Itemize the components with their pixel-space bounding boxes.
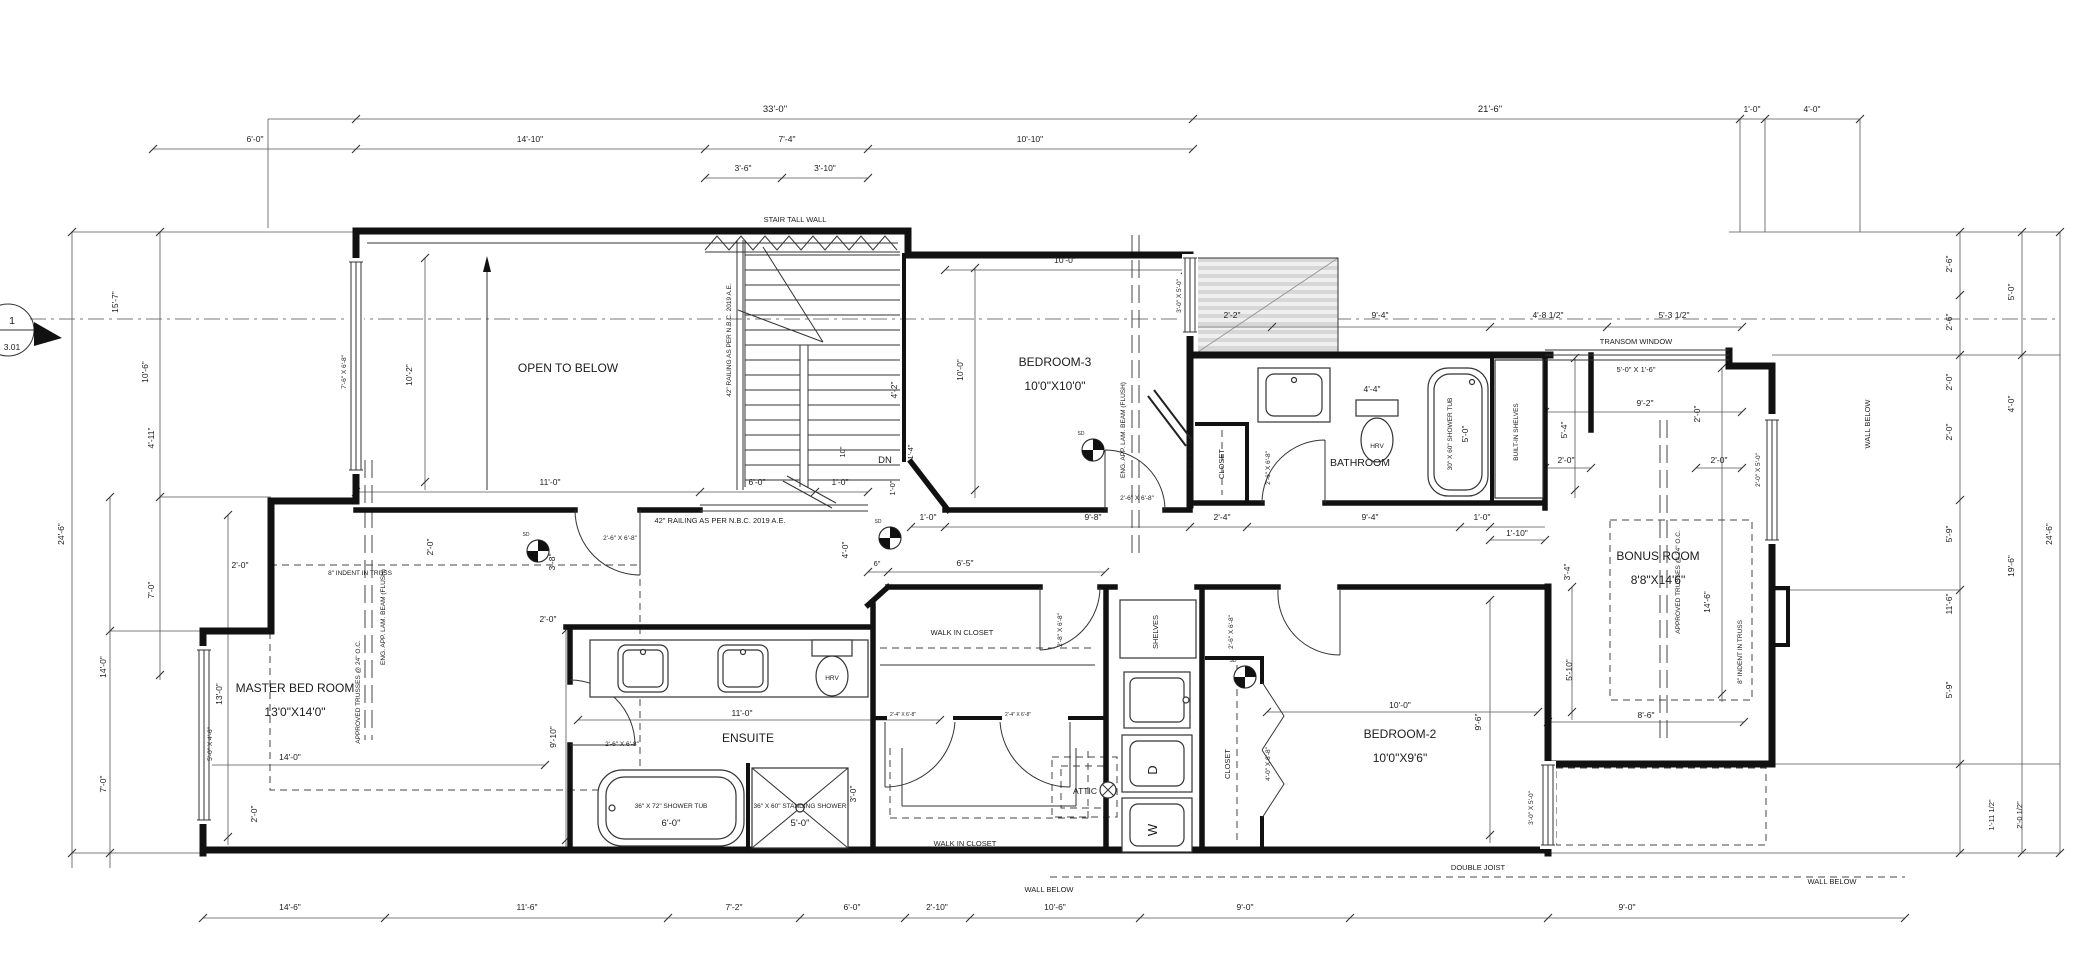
dim-label: 9'-10"	[548, 726, 558, 748]
window-size-label: 2'-0" X 5'-0"	[1755, 452, 1762, 487]
dim-label: 1'-0"	[888, 480, 897, 495]
room-size-label: 10'0"X10'0"	[1024, 379, 1085, 393]
dim-label: 2'-4"	[1214, 512, 1231, 522]
dim-label: 4'-4"	[1364, 384, 1381, 394]
note-trusses: APPROVED TRUSSES @ 24" O.C.	[355, 640, 362, 744]
door-size-label: 2'-6" X 6'-8"	[603, 535, 638, 542]
dim-label: 2'-0"	[1711, 455, 1728, 465]
fixture-size-label: 5'-0"	[791, 818, 810, 829]
dim-label: 15'-7"	[110, 291, 120, 313]
dim-label: 2'-0"	[540, 614, 557, 624]
door-size-label: 2'-6" X 6'-8"	[605, 741, 640, 748]
window-size-label: 3'-0" X 5'-0"	[1176, 278, 1183, 313]
dim-label: 33'-0"	[763, 104, 787, 115]
dim-label: 4'-2"	[889, 382, 899, 399]
fixture-label-shower: 36" X 60" STANDING SHOWER	[754, 803, 847, 810]
dim-label: 24'-6"	[56, 523, 66, 545]
note-indent: 8" INDENT IN TRUSS	[1737, 619, 1744, 683]
dim-label: 10"	[838, 446, 847, 457]
section-detail: 3.01	[4, 342, 21, 352]
closet-angled-doors	[1148, 390, 1192, 446]
hrv-label: HRV	[1370, 443, 1384, 450]
dim-label: 2'-0"	[1944, 424, 1954, 441]
note-double-joist: DOUBLE JOIST	[1451, 863, 1506, 872]
dim-label: 7'-4"	[779, 134, 796, 144]
floor-plan-drawing: 1 3.01 33'-0" 21'-6" 1'-0" 4'-0" 6'-0" 1…	[0, 0, 2082, 980]
note-railing: 42" RAILING AS PER N.B.C. 2019 A.E.	[726, 283, 733, 397]
fixture-label-tub: 36" X 72" SHOWER TUB	[635, 803, 708, 810]
dim-label: 3'-0"	[848, 786, 858, 803]
dim-label: 6'-0"	[247, 134, 264, 144]
dim-label: 7'-0"	[98, 776, 108, 793]
dim-label: 4'-0"	[1804, 104, 1821, 114]
dim-label: 1'-4"	[906, 444, 915, 459]
dim-label: 5'-3 1/2"	[1658, 310, 1689, 320]
dim-label: 9'-8"	[1085, 512, 1102, 522]
room-label-shelves: SHELVES	[1151, 615, 1160, 649]
room-label-closet: CLOSET	[1217, 449, 1226, 479]
room-label-builtin-shelves: BUILT-IN SHELVES	[1513, 403, 1520, 461]
dim-label: 9'-2"	[1637, 398, 1654, 408]
note-wall-below: WALL BELOW	[1807, 877, 1857, 886]
dim-label: 9'-4"	[1362, 512, 1379, 522]
dim-label: 9'-0"	[1619, 902, 1636, 912]
note-wall-below: WALL BELOW	[1024, 885, 1074, 894]
dim-label: 14'-6"	[1702, 591, 1712, 613]
room-size-label: 10'0"X9'6"	[1373, 751, 1427, 765]
transom-window	[1545, 350, 1729, 360]
dim-label: 14'-10"	[517, 134, 543, 144]
dim-label: 1'-11 1/2"	[1987, 799, 1996, 830]
dim-label: 9'-4"	[1372, 310, 1389, 320]
dim-label: 11'-6"	[516, 902, 537, 912]
room-label-bedroom2: BEDROOM-2	[1364, 727, 1437, 741]
door-size-label: 2'-6" X 6'-8"	[1228, 614, 1235, 649]
fixture-size-label: 6'-0"	[662, 818, 681, 829]
dim-label: 5'-0"	[2006, 284, 2016, 301]
dim-label: 7'-2"	[726, 902, 743, 912]
dim-label: 5'-9"	[1944, 526, 1954, 543]
dim-label: 11'-0"	[539, 477, 560, 487]
dim-label: 3'-4"	[1562, 564, 1572, 581]
window-size-label: 3'-0" X 5'-0"	[1528, 790, 1535, 825]
dim-label: 13'-0"	[214, 683, 224, 705]
railing-line	[700, 505, 868, 511]
dim-label: 10'-10"	[1017, 134, 1043, 144]
dim-label: 3'-8"	[547, 554, 557, 571]
dim-label: 2'-10"	[926, 902, 948, 912]
dim-label: 2'-0"	[249, 806, 259, 823]
section-marker: 1 3.01	[0, 304, 62, 356]
dim-label: 1'-0"	[1744, 104, 1761, 114]
note-railing: 42" RAILING AS PER N.B.C. 2019 A.E.	[654, 516, 785, 525]
bathroom-toilet-tank	[1356, 400, 1398, 416]
dim-label: 2'-2"	[1224, 310, 1241, 320]
dim-label: 5'-10"	[1564, 659, 1574, 681]
room-label-attic: ATTIC	[1073, 786, 1097, 796]
dim-label: 2'-0"	[1692, 406, 1702, 423]
door-size-label: 2'-8" X 6'-8"	[1057, 612, 1064, 647]
dim-label: 4'-0"	[840, 542, 850, 559]
master-bedroom-labels: MASTER BED ROOM 13'0"X14'0" 13'-0" 14'-0…	[207, 539, 557, 823]
window-size-label: 7'-6" X 6'-8"	[341, 354, 348, 389]
roof-hatch	[1198, 258, 1338, 352]
dim-label: 11'-6"	[1944, 593, 1954, 614]
door-size-label: 2'-6" X 6'-8"	[1265, 450, 1272, 485]
dim-label: 4'-11"	[146, 427, 156, 448]
dim-label: 10'-0"	[1054, 255, 1076, 265]
dim-label: 3'-10"	[814, 163, 836, 173]
dim-label: 11'-0"	[731, 708, 752, 718]
dim-label: 9'-0"	[1237, 902, 1254, 912]
dim-label: 6'-0"	[844, 902, 861, 912]
dim-label: 10'-2"	[404, 364, 414, 386]
smoke-detector-label: SD	[875, 519, 882, 525]
dim-label: 14'-6"	[279, 902, 301, 912]
room-label-closet: CLOSET	[1223, 749, 1232, 779]
door-size-label: 2'-4" X 6'-8"	[1005, 712, 1031, 718]
door-size-label: 4'-0" X 6'-8"	[1187, 437, 1194, 472]
fixture-size-label: 5'-0"	[1460, 426, 1470, 443]
dim-label: 2'-0"	[1944, 374, 1954, 391]
transom-size-label: 5'-0" X 1'-6"	[1616, 365, 1655, 374]
dim-label: 10'-6"	[140, 361, 150, 383]
bedroom2-labels: BEDROOM-2 10'0"X9'6" 10'-0" 9'-6" CLOSET…	[1223, 564, 1574, 825]
dim-label: 4'-0"	[2006, 396, 2016, 413]
dim-labels-bottom: 14'-6" 11'-6" 7'-2" 6'-0" 2'-10" 10'-6" …	[279, 863, 1857, 912]
dim-label: 6'-5"	[957, 558, 974, 568]
dim-label: 9'-6"	[1473, 714, 1483, 731]
note-beam: ENG. APP. LAM. BEAM (FLUSH)	[380, 569, 387, 665]
dim-label: 2'-6"	[1944, 314, 1954, 331]
section-number: 1	[9, 315, 15, 327]
dim-label: 4'-8 1/2"	[1532, 310, 1563, 320]
staircase	[705, 236, 900, 508]
window-size-label: 5'-0" X 4'-6"	[207, 726, 214, 761]
room-label-wic-upper: WALK IN CLOSET	[931, 628, 994, 637]
room-size-label: 13'0"X14'0"	[264, 705, 325, 719]
smoke-detector-label: SD	[1230, 658, 1237, 664]
room-label-open-to-below: OPEN TO BELOW	[518, 361, 619, 375]
dim-label: 1'-0"	[920, 512, 937, 522]
dim-label: 10'-0"	[955, 359, 965, 381]
dim-label: 14'-0"	[98, 656, 108, 678]
note-stair-tall-wall: STAIR TALL WALL	[764, 215, 827, 224]
note-trusses: APPROVED TRUSSES @ 24" O.C.	[1675, 530, 1682, 634]
dim-label: 14'-0"	[279, 752, 301, 762]
fixtures	[590, 360, 1543, 852]
smoke-detector-label: SD	[1078, 431, 1085, 437]
washer-label: W	[1145, 823, 1160, 836]
stair-tall-wall-hatch	[705, 236, 900, 252]
floor-plan-page: 1 3.01 33'-0" 21'-6" 1'-0" 4'-0" 6'-0" 1…	[0, 0, 2082, 980]
dim-labels-right: 2'-6" 2'-6" 5'-0" 2'-0" 4'-0" 2'-0" 5'-9…	[1863, 256, 2054, 831]
door-size-label: 2'-6" X 6'-8"	[1120, 495, 1155, 502]
hrv-label: HRV	[825, 675, 839, 682]
smoke-detector-label: SD	[523, 532, 530, 538]
exterior-walls	[203, 231, 1788, 853]
dim-label: 2'-0"	[425, 539, 435, 556]
dim-label: 19'-6"	[2006, 555, 2016, 577]
dim-label: 8'-6"	[1638, 710, 1655, 720]
note-wall-below: WALL BELOW	[1863, 399, 1872, 449]
dim-label: 5'-9"	[1944, 682, 1954, 699]
dim-label: 10'-6"	[1044, 902, 1066, 912]
dim-label: 2'-0"	[1558, 455, 1575, 465]
dim-label: 6'-0"	[749, 477, 766, 487]
dim-label: 21'-6"	[1478, 104, 1502, 115]
room-label-bedroom3: BEDROOM-3	[1019, 355, 1092, 369]
room-label-bonus: BONUS ROOM	[1616, 549, 1699, 563]
dim-label: 1'-10"	[1506, 528, 1528, 538]
section-arrow-icon	[34, 322, 62, 346]
bathroom-toilet-bowl	[1361, 418, 1393, 462]
stair-down-label: DN	[878, 455, 892, 466]
dryer-label: D	[1145, 765, 1160, 774]
door-size-label: 2'-4" X 6'-8"	[890, 712, 916, 718]
dim-label: 10'-0"	[1389, 700, 1411, 710]
room-label-master: MASTER BED ROOM	[236, 681, 355, 695]
dim-label: 3'-6"	[735, 163, 752, 173]
note-transom-window: TRANSOM WINDOW	[1600, 337, 1673, 346]
dim-labels-left: 24'-6" 15'-7" 10'-6" 4'-11" 7'-0" 14'-0"…	[56, 291, 156, 792]
ensuite-toilet-tank	[812, 640, 852, 656]
dim-label: 1'-0"	[832, 477, 849, 487]
room-label-wic-lower: WALK IN CLOSET	[934, 839, 997, 848]
dim-label: 1'-0"	[1474, 512, 1491, 522]
room-label-bathroom: BATHROOM	[1330, 457, 1390, 469]
dim-label: 7'-0"	[146, 582, 156, 599]
dim-label: 2'-0"	[232, 560, 249, 570]
fixture-label-tub: 30" X 60" SHOWER TUB	[1447, 398, 1454, 471]
dim-label: 2'-6"	[1944, 256, 1954, 273]
dim-label: 24'-6"	[2044, 523, 2054, 545]
dim-label: 2'-0 1/2"	[2015, 801, 2024, 829]
door-size-label: 4'-0" X 6'-8"	[1265, 746, 1272, 781]
note-beam: ENG. APP. LAM. BEAM (FLUSH)	[1120, 382, 1127, 478]
open-to-below-labels: OPEN TO BELOW 10'-2" 7'-6" X 6'-8" 42" R…	[341, 283, 1237, 664]
dim-labels-top: 33'-0" 21'-6" 1'-0" 4'-0" 6'-0" 14'-10" …	[247, 104, 1821, 374]
room-label-ensuite: ENSUITE	[722, 731, 774, 745]
dim-label: 6"	[874, 559, 881, 568]
dim-label: 5'-4"	[1559, 422, 1569, 439]
